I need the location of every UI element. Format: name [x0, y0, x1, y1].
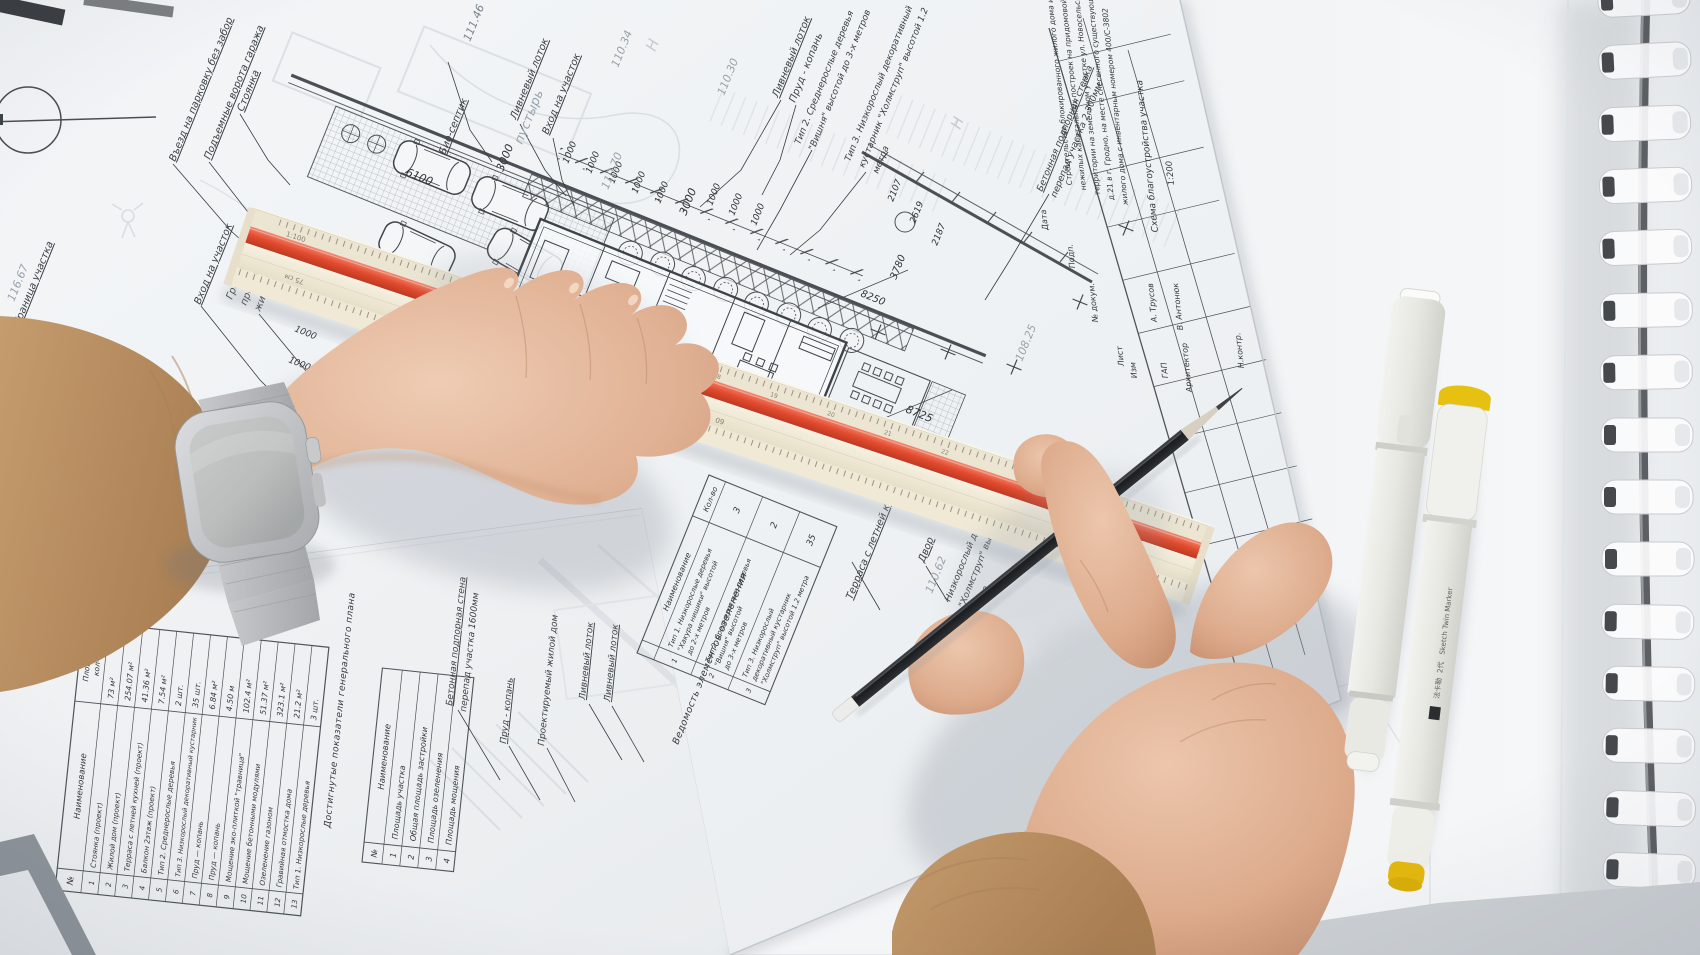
svg-text:4: 4 — [442, 858, 451, 864]
svg-text:11: 11 — [256, 896, 266, 906]
svg-text:12: 12 — [272, 897, 282, 907]
svg-text:2: 2 — [407, 854, 416, 860]
svg-text:3: 3 — [424, 856, 433, 862]
svg-text:13: 13 — [289, 899, 299, 909]
svg-text:1: 1 — [87, 880, 96, 885]
scene-canvas: № Наименование Площадь/кол-во 1Стоянка (… — [0, 0, 1700, 955]
svg-text:10: 10 — [239, 893, 249, 903]
table-main-header-num: № — [66, 876, 77, 887]
svg-text:1: 1 — [389, 852, 398, 858]
table-indicators-header-num: № — [369, 849, 379, 859]
tb-role-gap: ГАП — [1159, 362, 1170, 379]
marker-logo — [1428, 706, 1441, 720]
photo-scene: № Наименование Площадь/кол-во 1Стоянка (… — [0, 0, 1700, 955]
tb-col-izm: Изм — [1128, 362, 1139, 379]
